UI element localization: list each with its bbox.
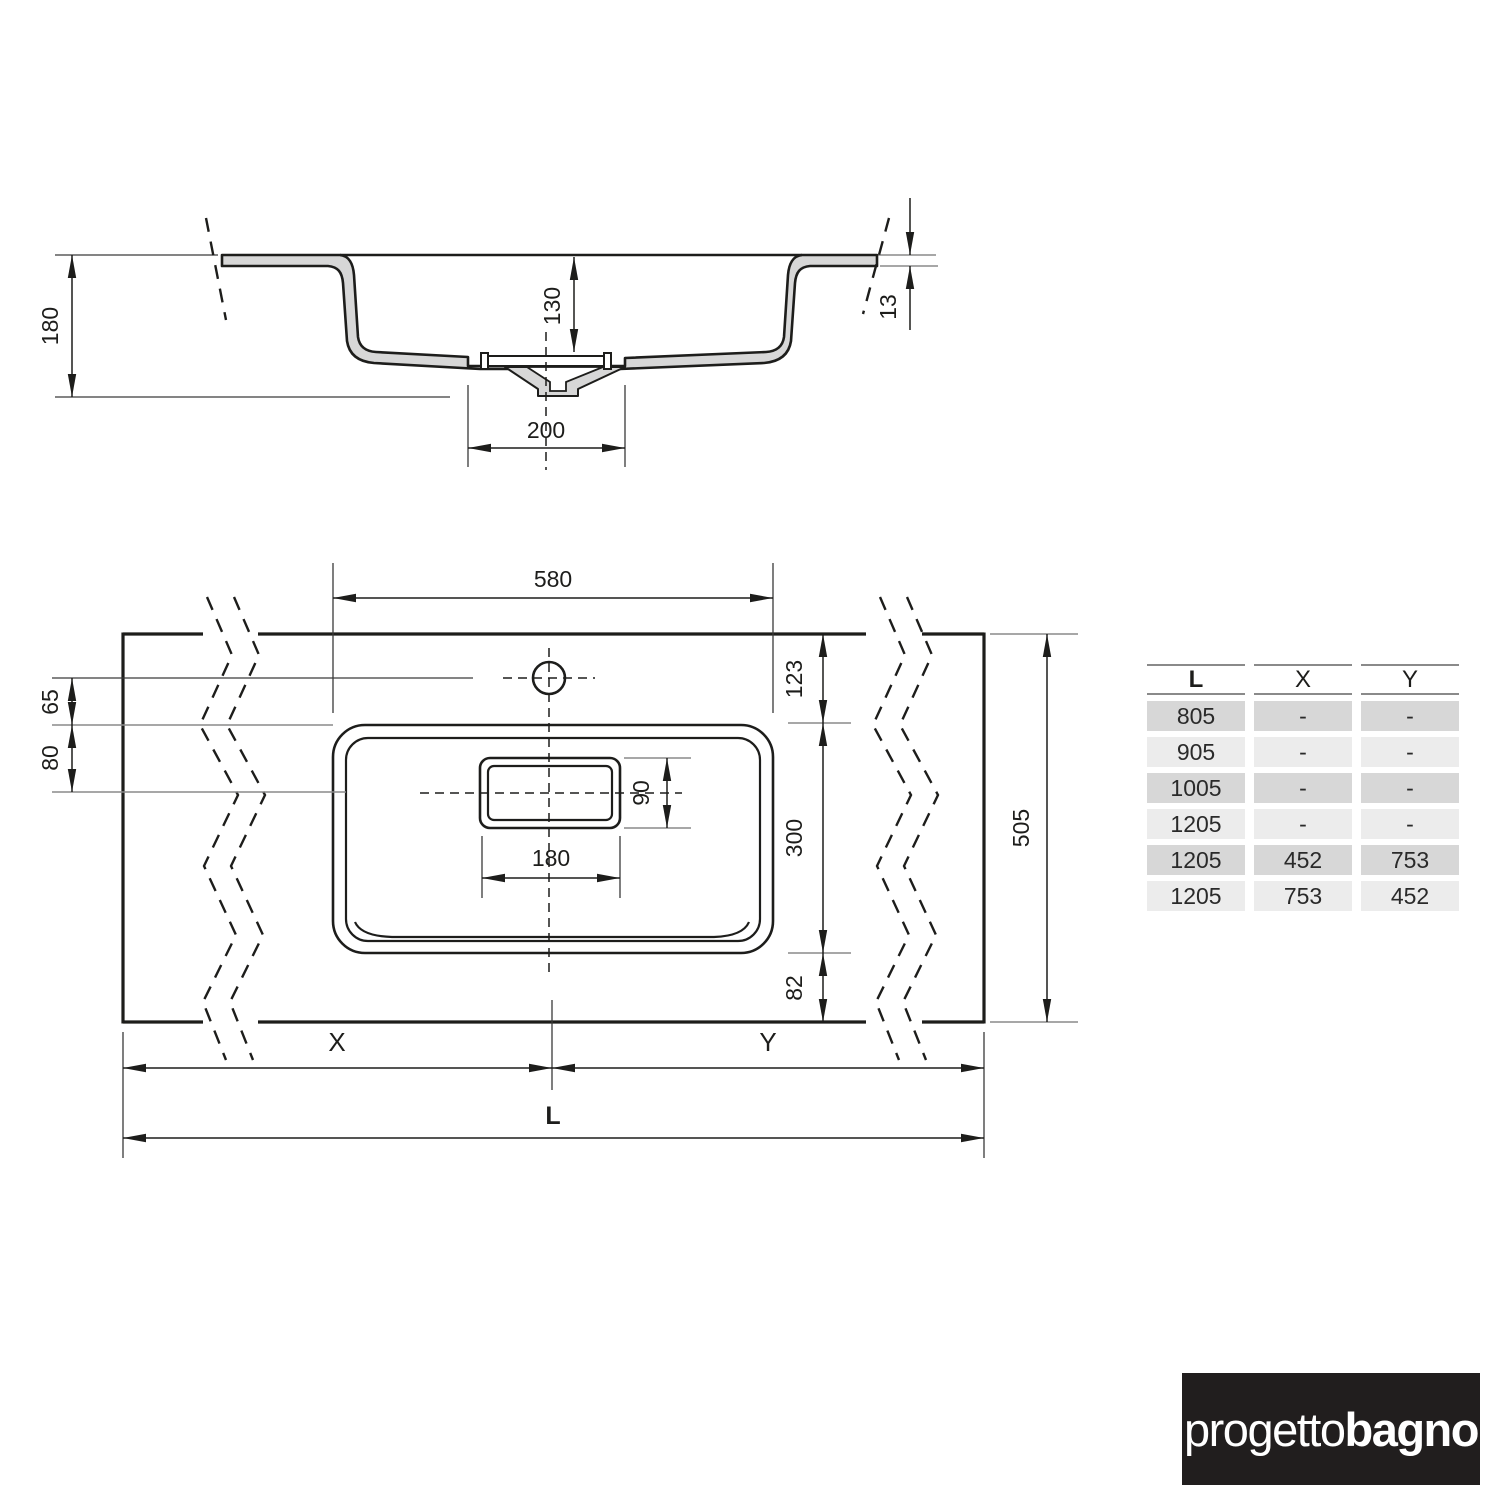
size-table-header-x: X <box>1254 664 1352 695</box>
basin-inner-outline <box>346 738 760 941</box>
table-cell: - <box>1361 701 1459 731</box>
dim-label-l: L <box>545 1102 560 1130</box>
size-table-header-l: L <box>1147 664 1245 695</box>
dim-label-drain-length: 180 <box>532 845 570 871</box>
table-cell: - <box>1254 809 1352 839</box>
table-cell: 753 <box>1254 881 1352 911</box>
table-cell: - <box>1254 701 1352 731</box>
dim-label-drain-height: 90 <box>628 780 654 806</box>
break-line-left-2 <box>227 597 265 1060</box>
table-cell: 1205 <box>1147 809 1245 839</box>
dim-label-x: X <box>328 1027 345 1057</box>
table-cell: 1205 <box>1147 881 1245 911</box>
table-cell: - <box>1361 809 1459 839</box>
section-break-left <box>206 218 226 320</box>
dim-label-drain-width: 200 <box>527 417 565 443</box>
size-table-header-y: Y <box>1361 664 1459 695</box>
table-cell: 753 <box>1361 845 1459 875</box>
dim-ext-length <box>123 1000 984 1158</box>
technical-drawing-page: 180 130 200 13 <box>0 0 1500 1500</box>
drain-plate-cap-left <box>481 353 488 369</box>
size-table: L X Y 805 - - 905 - - 1005 - - 1205 - - … <box>1147 664 1459 911</box>
progettobagno-logo: progettobagno <box>1182 1373 1480 1485</box>
table-cell: 452 <box>1254 845 1352 875</box>
section-view: 180 130 200 13 <box>37 198 938 470</box>
table-cell: - <box>1254 773 1352 803</box>
plan-view: 580 65 80 123 300 82 505 90 180 X Y L <box>37 563 1078 1158</box>
break-line-left-1 <box>200 597 238 1060</box>
basin-floor-sweep-line <box>355 922 749 937</box>
dim-label-hole-to-drain: 80 <box>37 745 63 771</box>
dim-label-back-edge: 82 <box>781 975 807 1001</box>
dim-label-bowl-depth: 130 <box>539 287 565 325</box>
table-cell: - <box>1361 773 1459 803</box>
dim-label-front-edge: 123 <box>781 660 807 698</box>
logo-text-regular: progetto <box>1184 1402 1344 1457</box>
dim-label-basin-depth: 300 <box>781 819 807 857</box>
dim-label-thickness: 13 <box>875 294 901 320</box>
dim-label-y: Y <box>759 1027 776 1057</box>
table-cell: 1205 <box>1147 845 1245 875</box>
dim-label-basin-width: 580 <box>534 566 572 592</box>
dim-label-total-depth: 505 <box>1008 809 1034 847</box>
dim-label-height: 180 <box>37 307 63 345</box>
table-cell: - <box>1361 737 1459 767</box>
table-cell: 452 <box>1361 881 1459 911</box>
table-cell: 805 <box>1147 701 1245 731</box>
dim-label-hole-offset: 65 <box>37 689 63 715</box>
table-cell: 1005 <box>1147 773 1245 803</box>
drain-plate-cap-right <box>604 353 611 369</box>
table-cell: - <box>1254 737 1352 767</box>
logo-text-bold: bagno <box>1344 1402 1477 1457</box>
table-cell: 905 <box>1147 737 1245 767</box>
ref-lines-total-depth <box>990 634 1078 1022</box>
break-line-right-1 <box>873 597 911 1060</box>
break-line-right-2 <box>900 597 938 1060</box>
